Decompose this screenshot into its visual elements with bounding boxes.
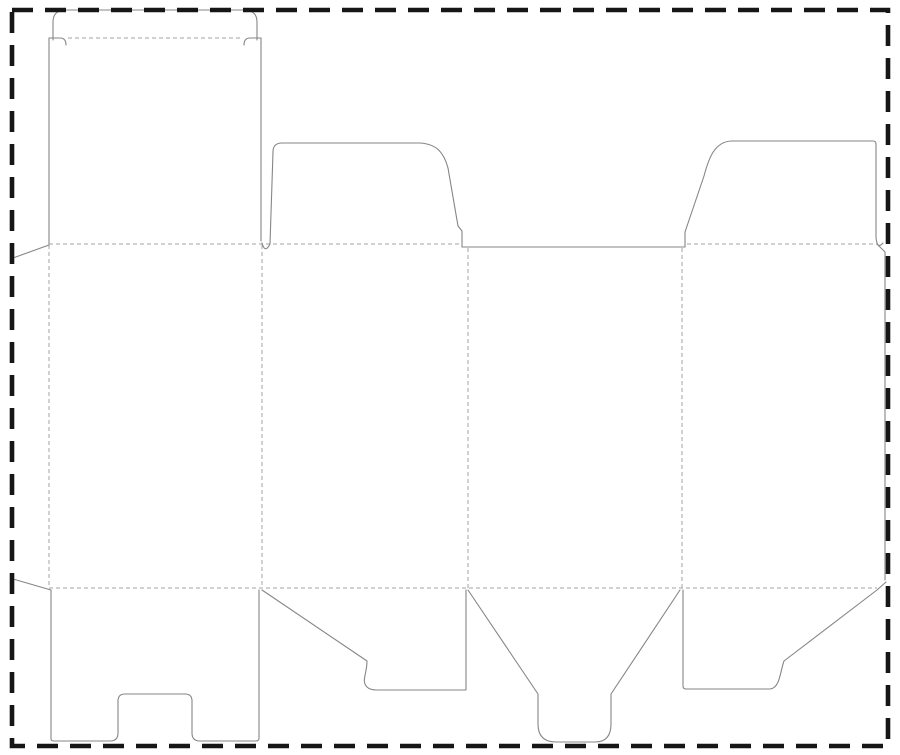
- bottom-flap-panel4-hooked: [683, 582, 886, 689]
- dieline-page: [0, 0, 900, 755]
- box-dieline-drawing: [0, 0, 900, 755]
- bottom-flap-panel2-hooked: [262, 590, 466, 690]
- bottom-flap-panel3-funnel: [468, 590, 680, 742]
- page-border-rect: [12, 10, 888, 746]
- dust-flap-right: [685, 141, 883, 247]
- tuck-lock-slit-left: [49, 38, 66, 45]
- glue-strip-left-top-diagonal: [13, 245, 49, 258]
- tuck-lock-slit-right: [244, 38, 261, 45]
- tuck-flap-outline: [53, 10, 257, 40]
- fold-lines-layer: [49, 38, 877, 588]
- cut-lines-layer: [13, 10, 886, 742]
- page-border: [12, 10, 888, 746]
- dust-flap-left: [262, 143, 462, 249]
- glue-strip-left-bottom-diagonal: [13, 579, 51, 590]
- bottom-flap-panel1-notched: [51, 590, 259, 741]
